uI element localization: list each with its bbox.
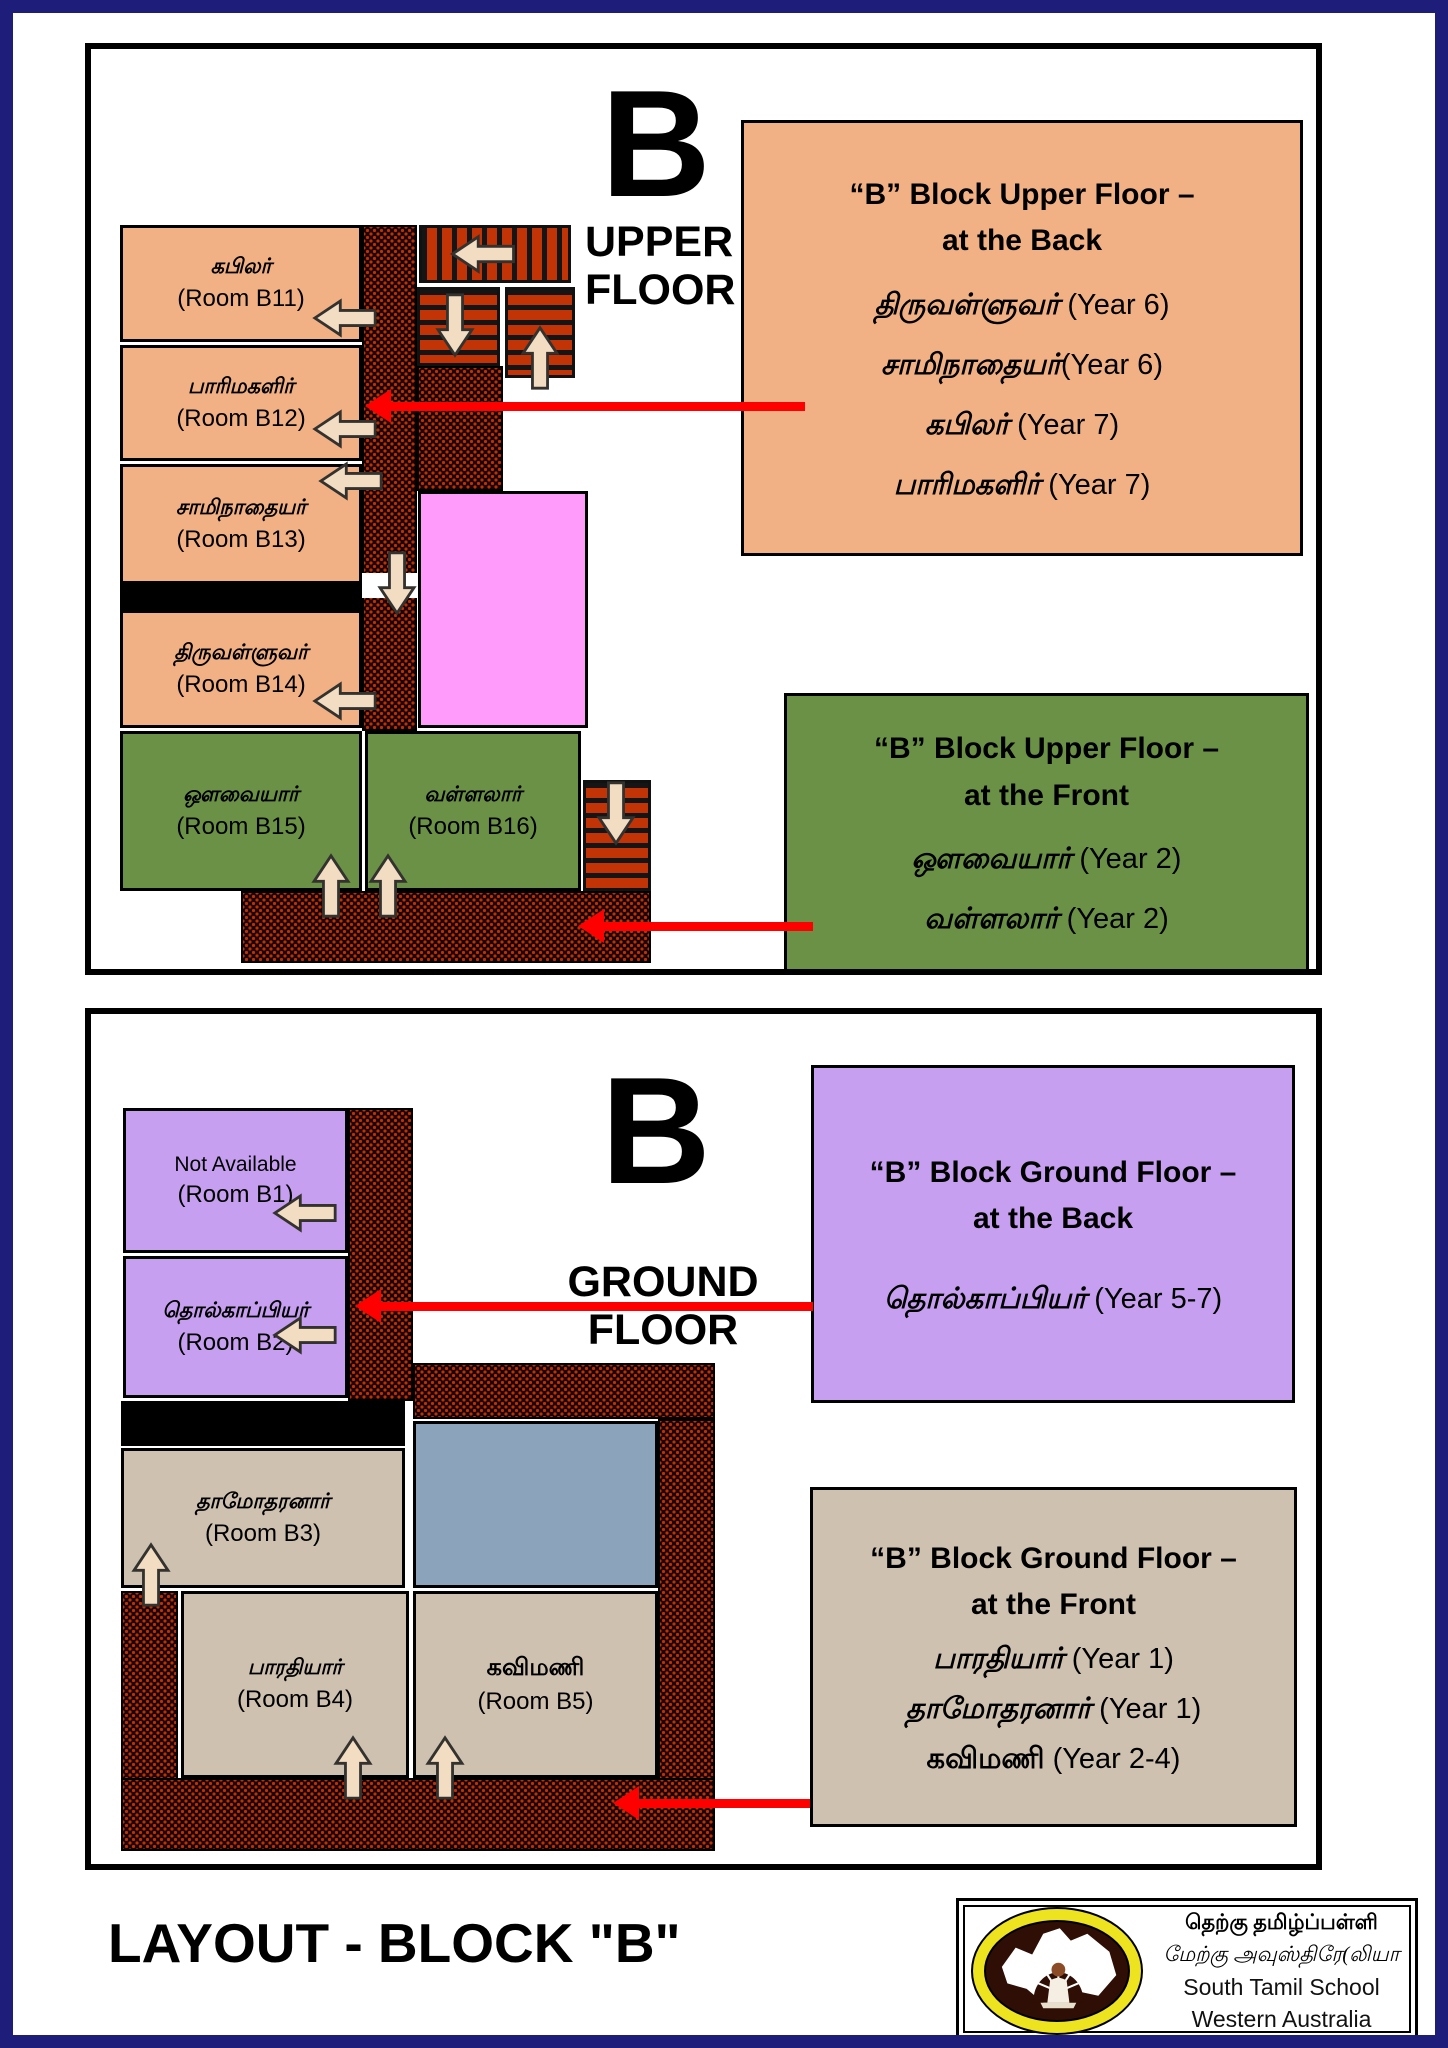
ground-courtyard-area [413, 1421, 658, 1588]
legend-entry: தாமோதரனார்(Year 1) [906, 1693, 1202, 1729]
upper-floor-label-line2: FLOOR [585, 266, 735, 314]
legend-entry-name: கபிலர் [925, 409, 1009, 441]
legend-entry-name: சாமிநாதையர் [881, 349, 1061, 381]
school-name-english: South Tamil School [1154, 1974, 1409, 2001]
room-b15-number: (Room B15) [176, 813, 305, 841]
upper-floor-label: UPPER FLOOR [585, 218, 735, 314]
up-arrow-icon-stair-right [519, 325, 561, 391]
ground-corridor-top [413, 1363, 715, 1419]
red-arrow-to-b2 [381, 1302, 813, 1311]
room-b13-number: (Room B13) [176, 526, 305, 554]
legend-entry: பாரிமகளிர்(Year 7) [894, 469, 1151, 505]
page-title: LAYOUT - BLOCK "B" [108, 1911, 681, 1975]
ground-divider-bar [121, 1401, 405, 1446]
upper-corridor-wide [417, 366, 503, 491]
room-b14-name: திருவள்ளுவர் [174, 640, 308, 667]
legend-entry-year: (Year 6) [1067, 289, 1169, 321]
up-arrow-icon-b3 [130, 1542, 172, 1608]
upper-divider-bar [120, 584, 362, 610]
room-b3-name: தாமோதரனார் [196, 1489, 330, 1516]
legend-entry-year: (Year 7) [1017, 409, 1119, 441]
school-name-tamil-1: தெற்கு தமிழ்ப்பள்ளி [1154, 1910, 1409, 1937]
legend-entry-year: (Year 5-7) [1094, 1283, 1222, 1315]
ground-legend-back-title2: at the Back [870, 1196, 1237, 1243]
legend-entry-year: (Year 6) [1061, 349, 1163, 381]
upper-legend-back-title1: “B” Block Upper Floor – [849, 172, 1194, 219]
up-arrow-icon-b15 [310, 853, 352, 919]
legend-entry-name: தாமோதரனார் [906, 1693, 1091, 1725]
left-arrow-icon-stair-top [443, 233, 523, 275]
upper-block-letter: B [601, 68, 709, 220]
room-b12-number: (Room B12) [176, 405, 305, 433]
upper-floor-label-line1: UPPER [585, 218, 735, 266]
room-b11-number: (Room B11) [177, 285, 305, 313]
legend-entry: கபிலர்(Year 7) [925, 409, 1119, 445]
room-b16-number: (Room B16) [408, 813, 537, 841]
room-b4: பாரதியார் (Room B4) [181, 1591, 409, 1778]
room-b1-name: Not Available [174, 1153, 296, 1177]
legend-entry-year: (Year 2) [1067, 903, 1169, 935]
left-arrow-icon-b1 [272, 1192, 338, 1234]
school-name-block: தெற்கு தமிழ்ப்பள்ளி மேற்கு அவுஸ்திரே(லிய… [1154, 1907, 1409, 2035]
school-name-tamil-2: மேற்கு அவுஸ்திரே(லியா [1154, 1942, 1409, 1969]
room-b3-number: (Room B3) [205, 1520, 321, 1548]
up-arrow-icon-b5 [424, 1735, 466, 1801]
room-b12-name: பாரிமகளிர் [188, 374, 294, 401]
school-logo-box: தெற்கு தமிழ்ப்பள்ளி மேற்கு அவுஸ்திரே(லிய… [956, 1898, 1418, 2040]
ground-block-letter: B [601, 1055, 709, 1207]
legend-entry-name: கவிமணி [927, 1743, 1045, 1775]
upper-legend-back: “B” Block Upper Floor – at the Back திரு… [741, 120, 1303, 556]
ground-floor-label-line1: GROUND [553, 1258, 773, 1306]
legend-entry-name: பாரிமகளிர் [894, 469, 1041, 501]
legend-entry: பாரதியார்(Year 1) [933, 1643, 1174, 1679]
legend-entry-name: பாரதியார் [933, 1643, 1064, 1675]
legend-entry: சாமிநாதையர்(Year 6) [881, 349, 1163, 385]
up-arrow-icon-b4 [332, 1735, 374, 1801]
room-b11-name: கபிலர் [211, 254, 272, 281]
ground-legend-back-title1: “B” Block Ground Floor – [870, 1150, 1237, 1197]
ground-floor-label-line2: FLOOR [553, 1306, 773, 1354]
room-b4-number: (Room B4) [237, 1686, 353, 1714]
red-arrow-to-ground-corridor [639, 1799, 810, 1808]
room-b16-name: வள்ளலார் [424, 782, 521, 809]
room-b13-name: சாமிநாதையர் [176, 495, 306, 522]
room-b5-name: கவிமணி [487, 1654, 585, 1684]
upper-legend-back-title2: at the Back [849, 218, 1194, 265]
down-arrow-icon-stair-b16 [595, 780, 637, 846]
red-arrow-to-b12 [391, 402, 805, 411]
upper-legend-front: “B” Block Upper Floor – at the Front ஔவை… [784, 693, 1309, 972]
left-arrow-icon-b13 [318, 460, 384, 502]
legend-entry-name: திருவள்ளுவர் [875, 289, 1060, 321]
school-logo-icon [973, 1909, 1141, 2033]
legend-entry: வள்ளலார்(Year 2) [924, 903, 1169, 939]
up-arrow-icon-b16 [367, 853, 409, 919]
left-arrow-icon-b2 [272, 1314, 338, 1356]
australia-map-icon [984, 1920, 1130, 2022]
left-arrow-icon-b11 [312, 297, 378, 339]
legend-entry-name: வள்ளலார் [924, 903, 1058, 935]
ground-legend-front: “B” Block Ground Floor – at the Front பா… [810, 1487, 1297, 1827]
ground-legend-front-title1: “B” Block Ground Floor – [870, 1536, 1237, 1583]
room-b14-number: (Room B14) [176, 671, 305, 699]
legend-entry-year: (Year 7) [1048, 469, 1150, 501]
layout-sheet: B UPPER FLOOR கபிலர் (Room B11) பாரிமகளி… [0, 0, 1448, 2048]
ground-corridor-vertical [348, 1108, 413, 1401]
upper-legend-front-title2: at the Front [874, 773, 1219, 820]
legend-entry-name: தொல்காப்பியர் [884, 1283, 1086, 1315]
red-arrow-to-upper-corridor [604, 922, 813, 931]
ground-legend-back: “B” Block Ground Floor – at the Back தொல… [811, 1065, 1295, 1403]
legend-entry: தொல்காப்பியர்(Year 5-7) [884, 1283, 1222, 1319]
upper-legend-front-title1: “B” Block Upper Floor – [874, 726, 1219, 773]
room-b15-name: ஔவையார் [183, 782, 299, 809]
legend-entry: ஔவையார்(Year 2) [912, 843, 1182, 879]
legend-entry-year: (Year 2-4) [1053, 1743, 1181, 1775]
legend-entry: திருவள்ளுவர்(Year 6) [875, 289, 1170, 325]
down-arrow-icon-doorway [376, 550, 418, 616]
school-region: Western Australia [1154, 2006, 1409, 2033]
legend-entry-year: (Year 1) [1099, 1693, 1201, 1725]
legend-entry-name: ஔவையார் [912, 843, 1072, 875]
legend-entry-year: (Year 2) [1079, 843, 1181, 875]
room-b4-name: பாரதியார் [248, 1655, 343, 1682]
ground-legend-front-title2: at the Front [870, 1582, 1237, 1629]
room-b5-number: (Room B5) [477, 1688, 593, 1716]
left-arrow-icon-b14 [312, 680, 378, 722]
upper-pink-area [418, 491, 588, 728]
legend-entry: கவிமணி(Year 2-4) [927, 1743, 1181, 1779]
down-arrow-icon-stair-left [434, 292, 476, 358]
legend-entry-year: (Year 1) [1072, 1643, 1174, 1675]
